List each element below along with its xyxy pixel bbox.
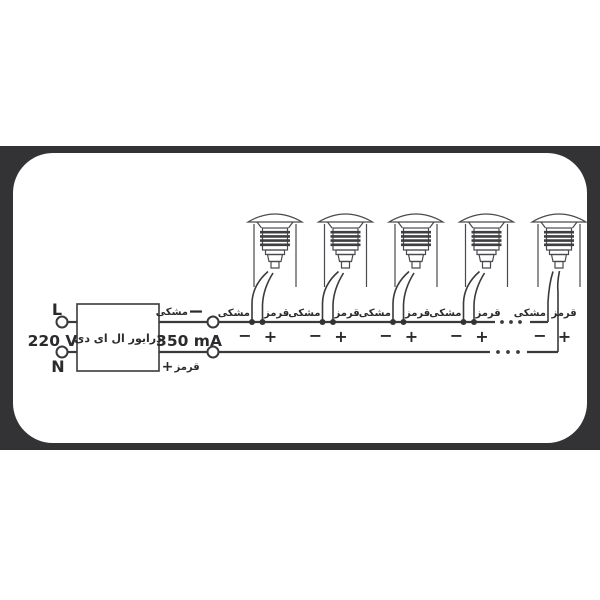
red-wire-label: قرمز — [475, 308, 501, 319]
driver-positive-sign: + — [162, 359, 174, 375]
plus-sign: + — [334, 327, 347, 346]
line-terminal — [57, 317, 68, 328]
red-wire-label: قرمز — [263, 308, 289, 319]
red-wire-label: قرمز — [334, 308, 360, 319]
black-wire-label: مشکی — [514, 308, 546, 319]
red-wire-label: قرمز — [551, 308, 577, 319]
black-wire-label: مشکی — [429, 308, 461, 319]
driver-positive-wire-label: قرمز — [174, 362, 200, 373]
minus-sign: − — [238, 326, 251, 345]
neutral-terminal — [57, 347, 68, 358]
led-driver-label: درایور ال ای دی — [74, 332, 162, 345]
wiring-diagram: L N 220 V درایور ال ای دی 350 mA مشکی − … — [0, 0, 600, 600]
neutral-terminal-label: N — [51, 357, 64, 376]
red-wire-label: قرمز — [404, 308, 430, 319]
driver-negative-wire-label: مشکی — [156, 307, 188, 318]
minus-sign: − — [533, 326, 546, 345]
plus-sign: + — [264, 327, 277, 346]
mains-voltage: 220 V — [28, 332, 78, 350]
plus-sign: + — [475, 327, 488, 346]
driver-negative-sign: − — [188, 301, 204, 323]
diagram-panel — [13, 153, 587, 443]
minus-sign: − — [450, 326, 463, 345]
minus-sign: − — [379, 326, 392, 345]
black-wire-label: مشکی — [359, 308, 391, 319]
black-wire-label: مشکی — [288, 308, 320, 319]
minus-sign: − — [309, 326, 322, 345]
plus-sign: + — [558, 327, 571, 346]
plus-sign: + — [405, 327, 418, 346]
black-wire-label: مشکی — [218, 308, 250, 319]
positive-out-terminal — [208, 347, 219, 358]
